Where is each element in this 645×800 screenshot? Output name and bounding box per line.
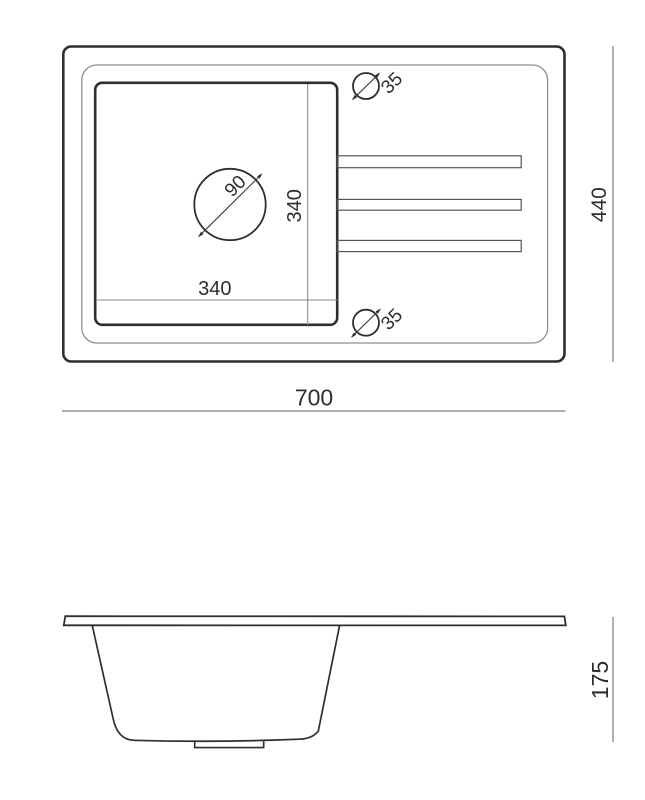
svg-text:340: 340 <box>198 278 231 300</box>
svg-text:440: 440 <box>588 187 611 222</box>
svg-text:90: 90 <box>221 172 251 202</box>
svg-text:175: 175 <box>587 661 613 699</box>
svg-text:35: 35 <box>377 305 407 335</box>
svg-text:700: 700 <box>295 385 333 411</box>
svg-text:35: 35 <box>377 69 407 99</box>
svg-text:340: 340 <box>284 189 306 222</box>
